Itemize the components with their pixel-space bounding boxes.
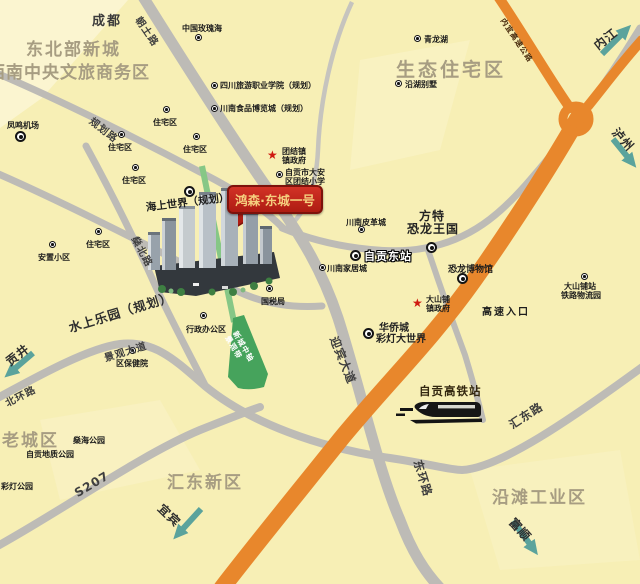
region-cbd: 西南中央文旅商务区 — [0, 58, 150, 83]
poi-dot-residential-5 — [95, 228, 102, 235]
station-label-zigong-hsr: 自贡高铁站 — [419, 383, 482, 399]
region-yantan-industrial: 沿滩工业区 — [492, 483, 587, 508]
poi-dot-qinglong-lake — [414, 35, 421, 42]
poi-dashanpu-gov-line2: 镇政府 — [426, 304, 450, 313]
expressway-northeast — [588, 40, 640, 106]
poi-dot-residential-3 — [193, 133, 200, 140]
poi-resettlement: 安置小区 — [38, 252, 70, 263]
region-eco-residential: 生态住宅区 — [396, 55, 506, 82]
poi-dot-food-expo — [211, 105, 218, 112]
poi-tuanjie-gov: 团结镇 镇政府 — [282, 147, 306, 165]
poi-tax-bureau: 国税局 — [261, 296, 285, 307]
poi-tourism-college: 四川旅游职业学院（规划） — [220, 80, 316, 91]
poi-tuanjie-gov-line2: 镇政府 — [282, 156, 306, 165]
poi-leather-city: 川南皮革城 — [346, 217, 386, 228]
star-icon-dashanpu-gov: ★ — [412, 296, 423, 310]
poi-dot-tourism-college — [211, 82, 218, 89]
poi-residential-5: 住宅区 — [86, 239, 110, 250]
poi-food-expo: 川南食品博览城（规划） — [220, 103, 308, 114]
poi-qinglong-lake: 青龙湖 — [424, 34, 448, 45]
poi-residential-3: 住宅区 — [183, 144, 207, 155]
poi-oct-lantern-world: 华侨城 彩灯大世界 — [379, 323, 426, 345]
poi-residential-1: 住宅区 — [153, 117, 177, 128]
poi-dot-fantawild — [426, 242, 437, 253]
poi-residential-2: 住宅区 — [108, 142, 132, 153]
project-name: 鸿森·东城一号 — [235, 190, 315, 209]
poi-dot-resettlement — [49, 241, 56, 248]
poi-lakeside-villas: 沿湖别墅 — [405, 79, 437, 90]
poi-dashanpu-logistics-line1: 大山铺站 — [564, 282, 601, 291]
poi-shenhai-park: 燊海公园 — [73, 435, 105, 446]
star-icon-tuanjie-gov: ★ — [267, 148, 278, 162]
poi-dot-residential-1 — [163, 106, 170, 113]
region-northeast-new-city: 东北部新城 — [26, 35, 121, 60]
poi-dashanpu-logistics-line2: 铁路物流园 — [561, 291, 601, 300]
poi-dot-tuanjie-school — [276, 171, 283, 178]
poi-tuanjie-school: 自贡市大安 区团结小学 — [285, 168, 325, 186]
poi-dashanpu-gov: 大山铺 镇政府 — [426, 295, 450, 313]
region-old-town: 老城区 — [2, 426, 59, 451]
poi-admin-office-area: 行政办公区 — [186, 324, 226, 335]
poi-residential-4: 住宅区 — [122, 175, 146, 186]
label-expressway-entrance: 高速入口 — [482, 303, 530, 318]
poi-dino-museum: 恐龙博物馆 — [448, 262, 493, 275]
poi-dot-admin-office-area — [200, 312, 207, 319]
poi-tuanjie-gov-line1: 团结镇 — [282, 147, 306, 156]
poi-dashanpu-gov-line1: 大山铺 — [426, 295, 450, 304]
project-banner: 鸿森·东城一号 — [227, 185, 323, 214]
region-huidong-new-district: 汇东新区 — [167, 468, 243, 493]
poi-geo-park: 自贡地质公园 — [26, 449, 74, 460]
poi-dot-oct-lantern-world — [363, 328, 374, 339]
poi-fengming-airport: 凤鸣机场 — [7, 120, 39, 131]
poi-lantern-park: 彩灯公园 — [1, 481, 33, 492]
location-map: 成都 东北部新城 西南中央文旅商务区 生态住宅区 老城区 汇东新区 沿滩工业区 … — [0, 0, 640, 584]
station-icon-zigong-east — [350, 250, 361, 261]
poi-tuanjie-school-line1: 自贡市大安 — [285, 168, 325, 177]
arrow-yibin — [180, 509, 201, 532]
poi-dot-tax-bureau — [266, 285, 273, 292]
poi-home-city: 川南家居城 — [327, 263, 367, 274]
poi-dot-fengming-airport — [15, 131, 26, 142]
poi-rose-sea: 中国玫瑰海 — [182, 23, 222, 34]
train-icon — [396, 402, 482, 424]
poi-fantawild-line2: 恐龙王国 — [407, 223, 459, 236]
poi-dot-dashanpu-logistics — [581, 273, 588, 280]
poi-dot-residential-4 — [132, 164, 139, 171]
poi-dot-home-city — [319, 264, 326, 271]
poi-oct-line2: 彩灯大世界 — [376, 334, 426, 345]
poi-dashanpu-logistics: 大山铺站 铁路物流园 — [564, 282, 601, 300]
poi-dot-rose-sea — [195, 34, 202, 41]
poi-fantawild: 方特 恐龙王国 — [419, 210, 459, 236]
poi-health-center: 区保健院 — [116, 358, 148, 369]
city-label-chengdu: 成都 — [92, 10, 122, 29]
station-label-zigong-east: 自贡东站 — [364, 248, 412, 264]
poi-oct-line1: 华侨城 — [379, 323, 426, 334]
